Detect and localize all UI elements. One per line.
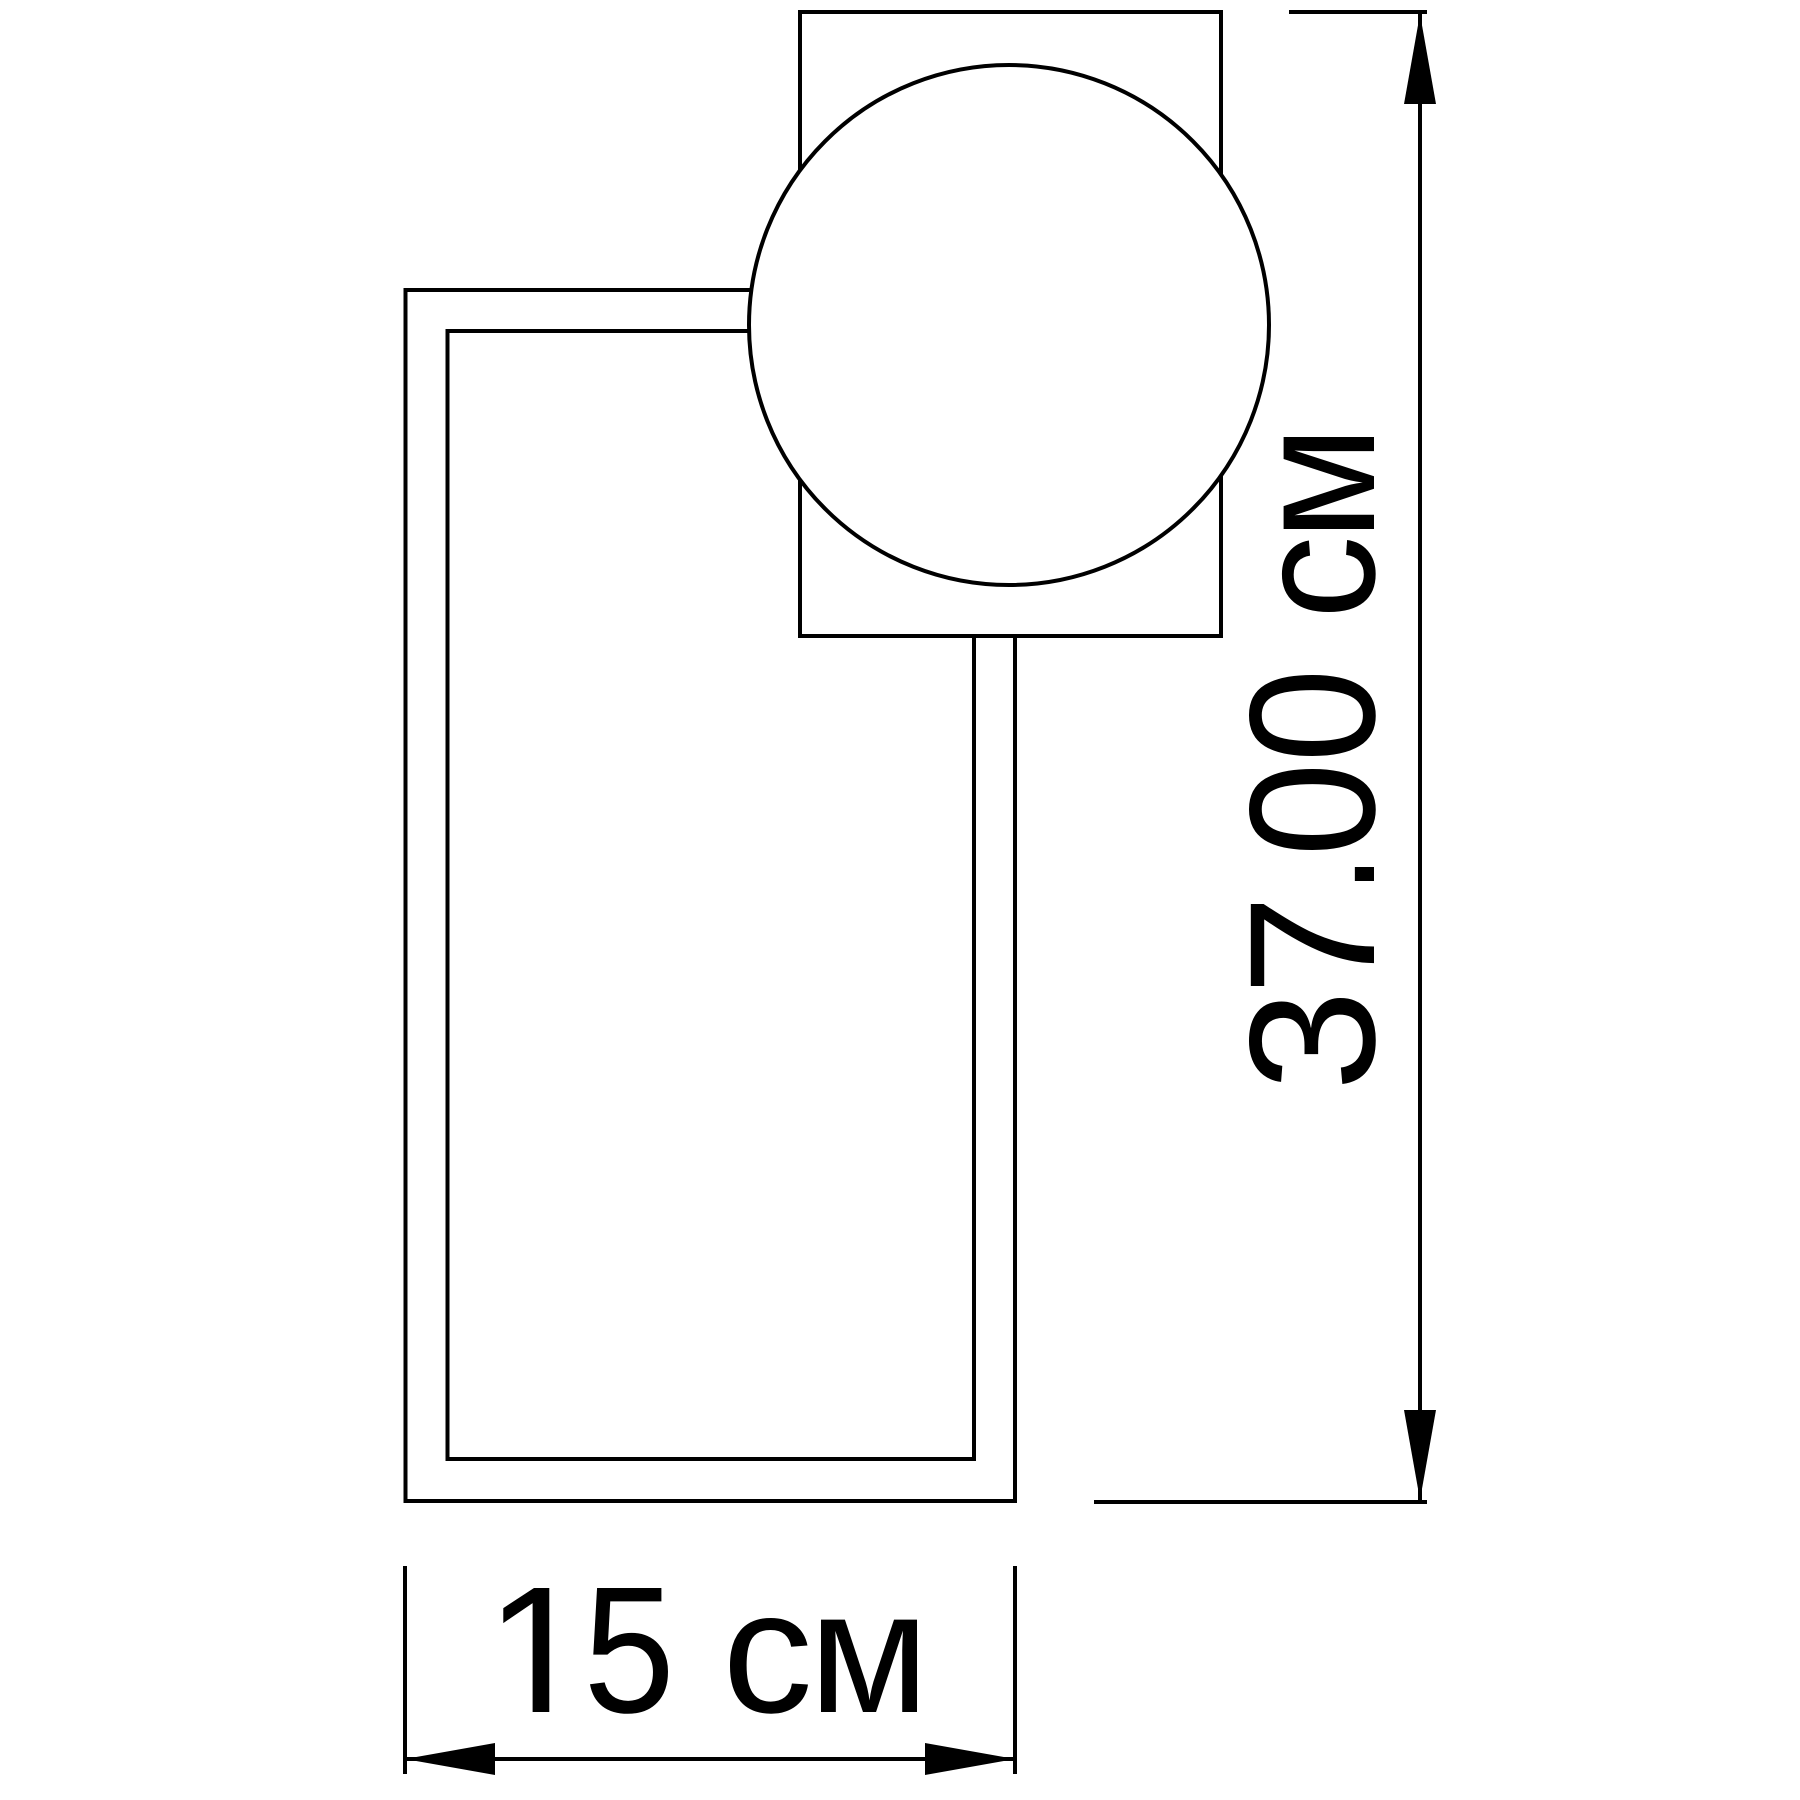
svg-text:м: м <box>1219 425 1410 540</box>
svg-text:0: 0 <box>1212 668 1412 762</box>
svg-text:с: с <box>722 1554 812 1750</box>
svg-text:с: с <box>1219 536 1410 619</box>
svg-text:0: 0 <box>1212 762 1412 856</box>
svg-text:3: 3 <box>1213 990 1413 1091</box>
svg-text:5: 5 <box>583 1549 674 1751</box>
svg-text:.: . <box>1212 854 1412 895</box>
svg-text:7: 7 <box>1213 895 1413 995</box>
svg-text:м: м <box>809 1555 929 1750</box>
